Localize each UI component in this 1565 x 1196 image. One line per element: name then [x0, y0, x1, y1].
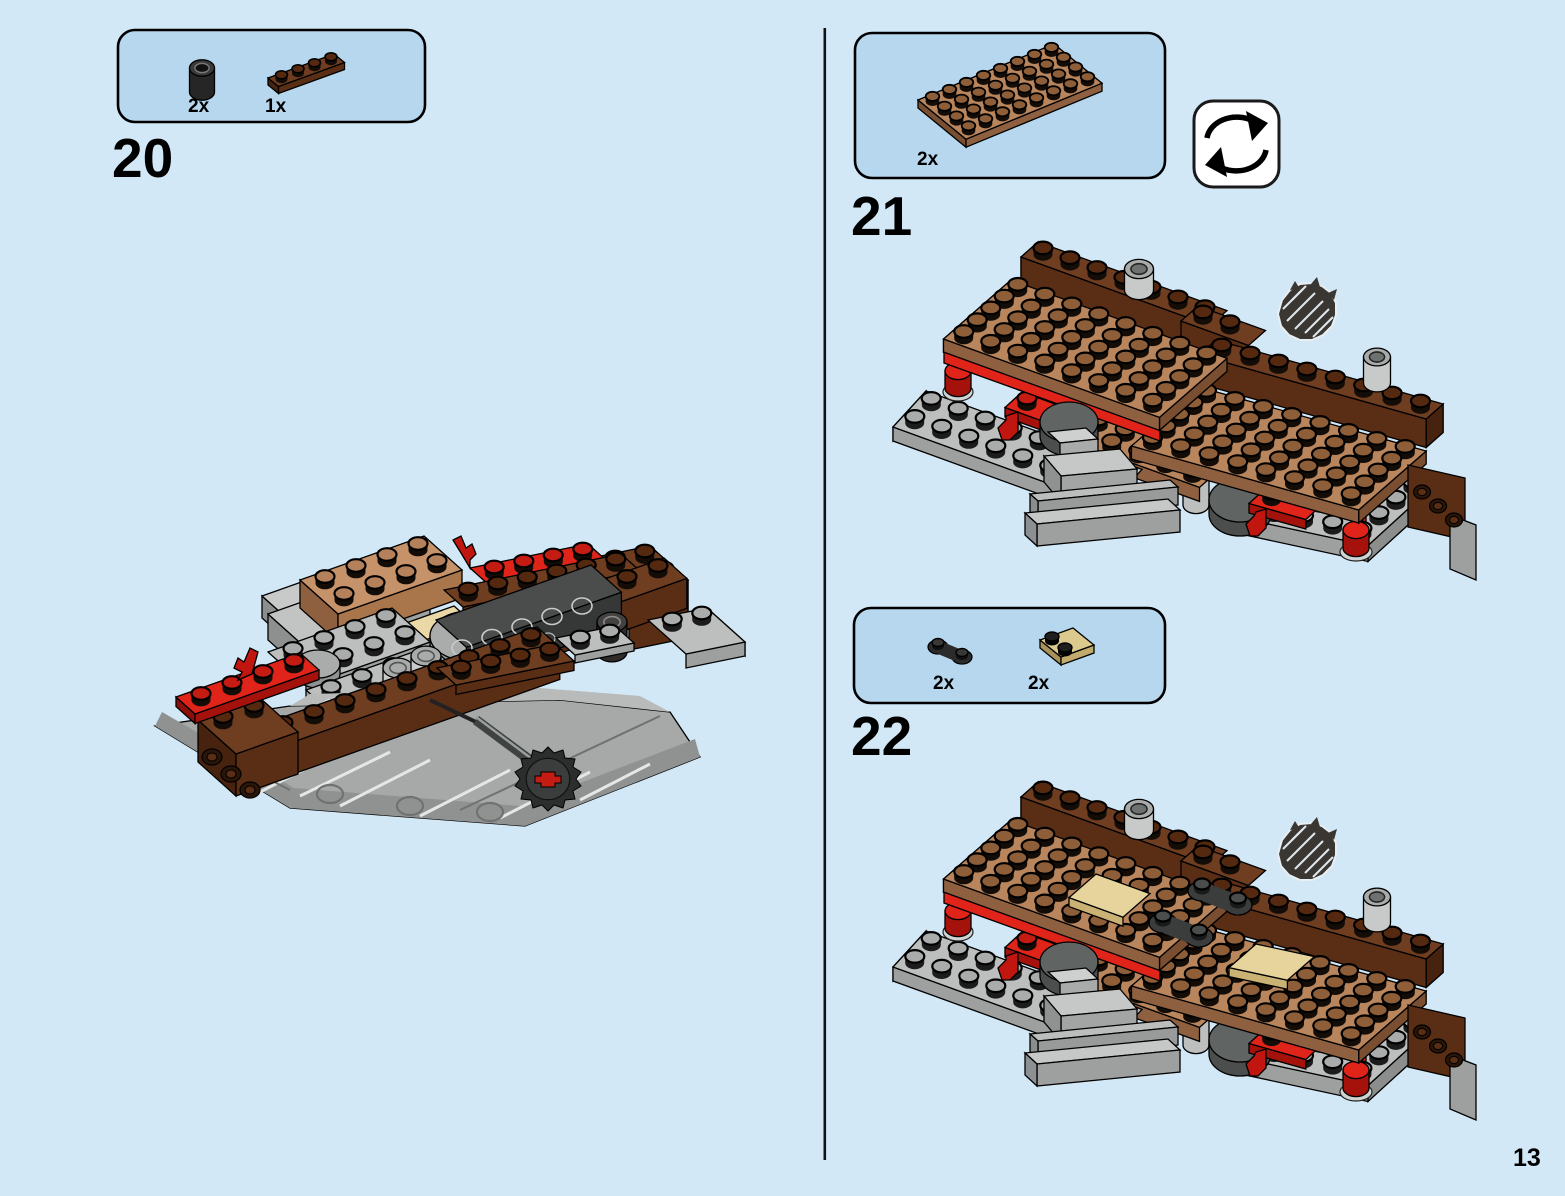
svg-text:2x: 2x	[917, 149, 939, 170]
svg-text:2x: 2x	[188, 96, 210, 117]
svg-text:22: 22	[851, 705, 912, 767]
svg-text:20: 20	[112, 127, 173, 189]
svg-text:2x: 2x	[1028, 673, 1050, 694]
svg-text:2x: 2x	[933, 673, 955, 694]
svg-text:21: 21	[851, 185, 912, 247]
svg-text:13: 13	[1513, 1144, 1541, 1172]
svg-text:1x: 1x	[265, 96, 287, 117]
